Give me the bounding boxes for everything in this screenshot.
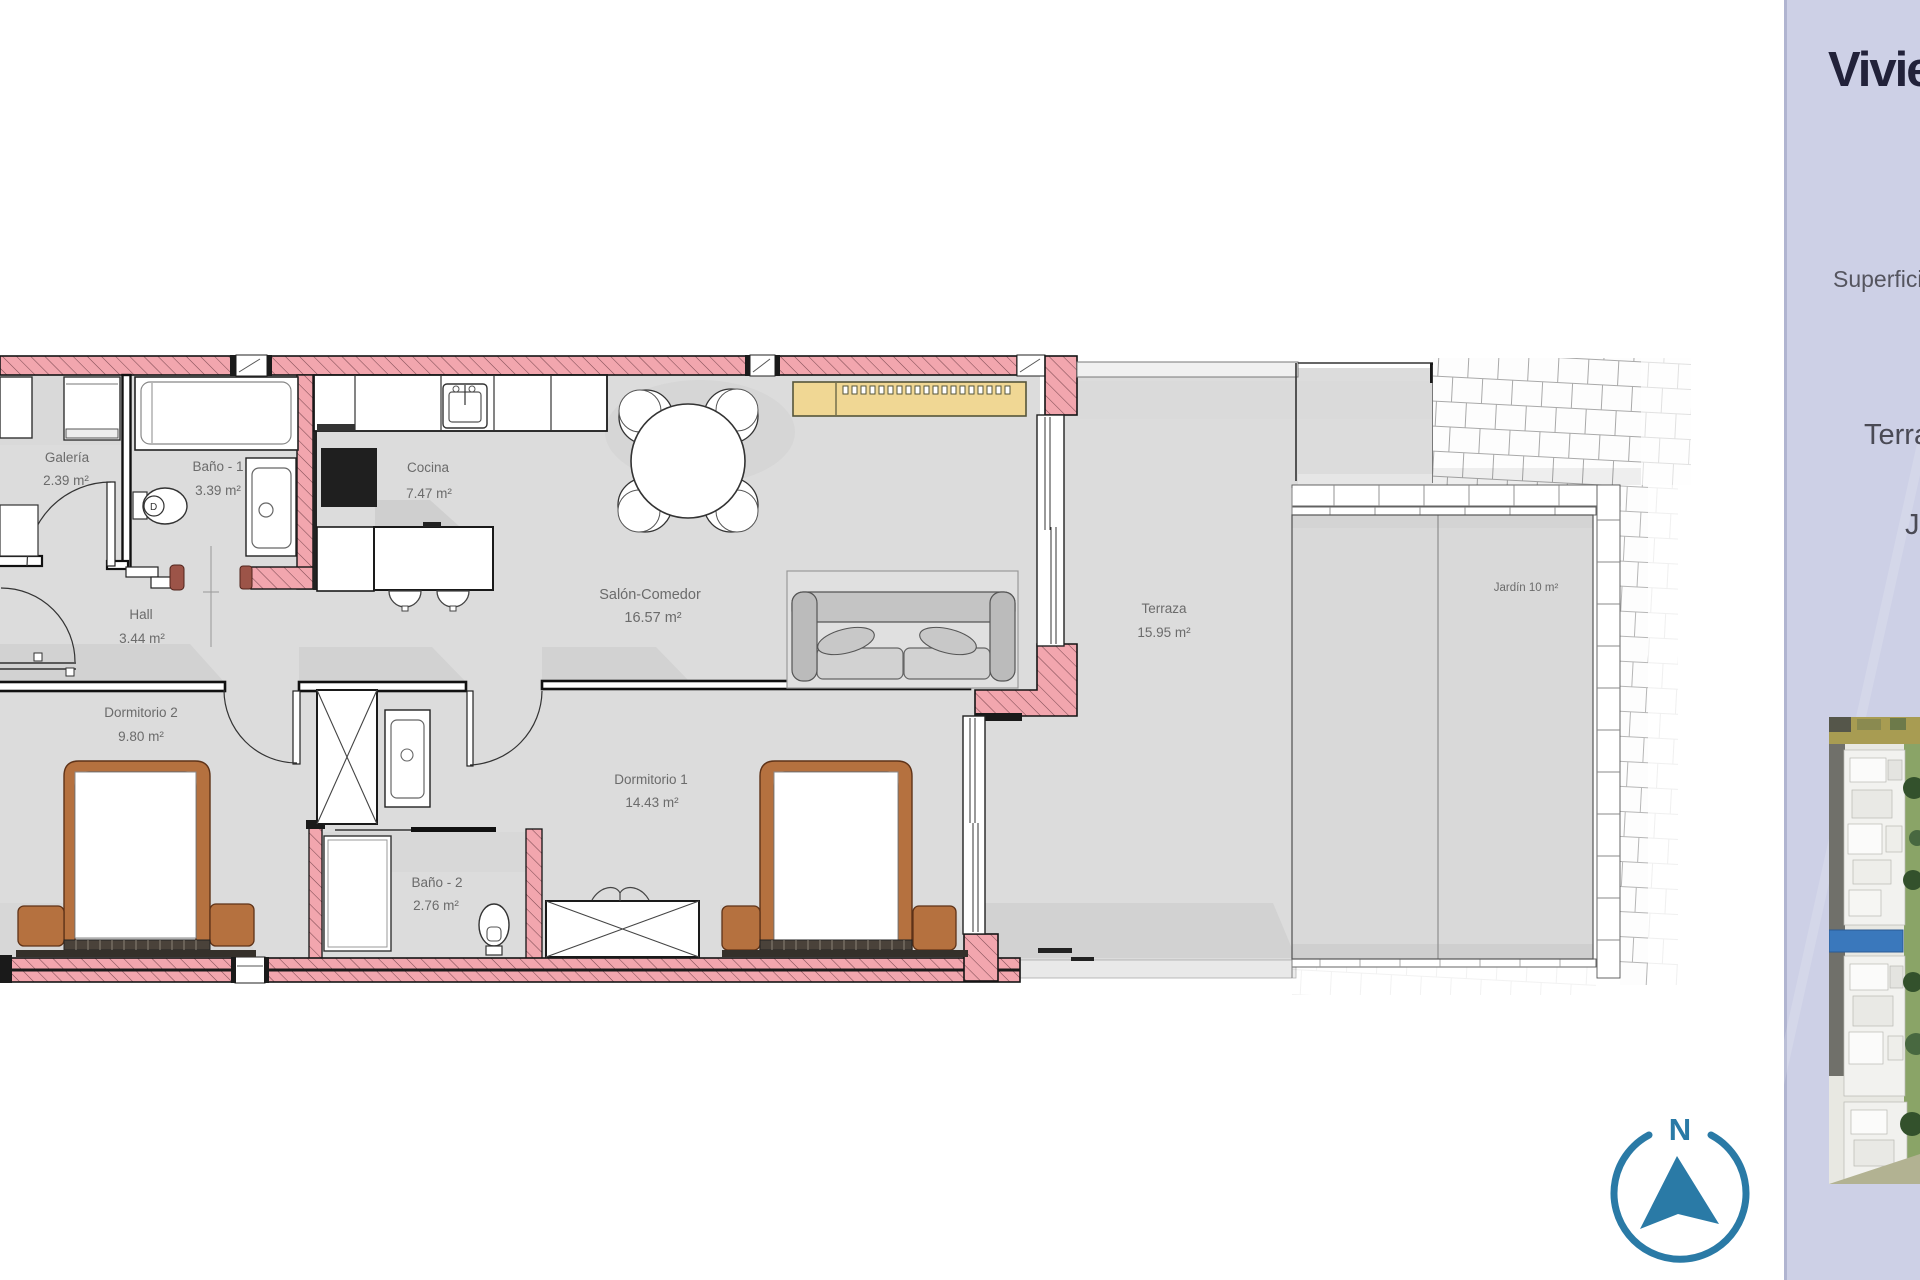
svg-text:Hall: Hall [129, 607, 152, 622]
svg-text:3.44 m²: 3.44 m² [119, 631, 165, 646]
svg-text:Salón-Comedor: Salón-Comedor [599, 587, 701, 603]
svg-text:7.47 m²: 7.47 m² [406, 486, 452, 501]
svg-text:Viviend: Viviend [1828, 43, 1920, 97]
svg-text:Dormitorio 1: Dormitorio 1 [614, 772, 688, 787]
svg-text:Cocina: Cocina [407, 460, 450, 475]
svg-text:Superficie: Superficie [1833, 266, 1920, 292]
svg-text:2.76 m²: 2.76 m² [413, 898, 459, 913]
svg-text:D: D [150, 502, 157, 513]
svg-text:2.39 m²: 2.39 m² [43, 473, 89, 488]
svg-text:Baño - 2: Baño - 2 [411, 875, 462, 890]
svg-text:Jardín: Jardín [1905, 509, 1920, 541]
svg-text:Baño - 1: Baño - 1 [192, 459, 243, 474]
svg-text:Terraza: Terraza [1141, 601, 1187, 616]
svg-text:Jardín 10 m²: Jardín 10 m² [1494, 582, 1559, 594]
svg-text:Terraza:: Terraza: [1864, 419, 1920, 451]
svg-text:9.80 m²: 9.80 m² [118, 729, 164, 744]
svg-text:15.95 m²: 15.95 m² [1137, 625, 1191, 640]
svg-text:16.57 m²: 16.57 m² [624, 610, 681, 626]
svg-text:Galería: Galería [45, 450, 90, 465]
svg-text:Dormitorio 2: Dormitorio 2 [104, 705, 178, 720]
svg-text:N: N [1669, 1112, 1691, 1147]
svg-text:3.39 m²: 3.39 m² [195, 483, 241, 498]
svg-text:14.43 m²: 14.43 m² [625, 795, 679, 810]
